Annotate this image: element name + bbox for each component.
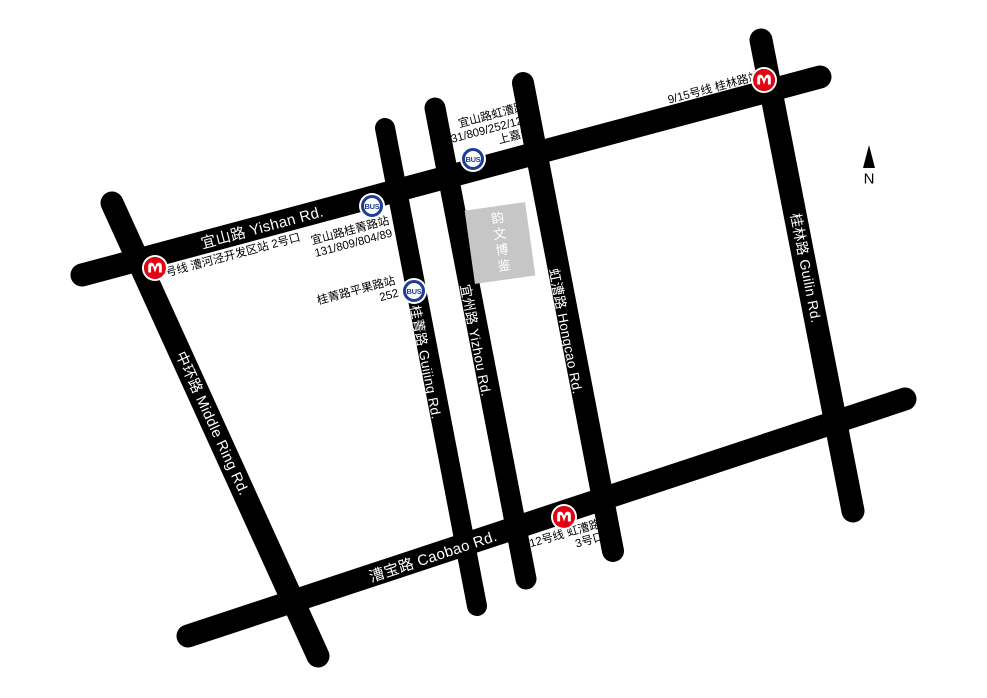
- map: 韵文博鉴 宜山路 Yishan Rd. 中环路 Middle Ring Rd. …: [0, 0, 987, 698]
- bus-stop-guijing-pingguo: BUS: [403, 280, 425, 302]
- road-network: [0, 0, 987, 698]
- metro-station-guilin-road: [753, 69, 775, 91]
- north-arrow-icon: [861, 145, 877, 169]
- bus-stop-yishan-guijing: BUS: [361, 195, 383, 217]
- bus-icon: BUS: [361, 195, 383, 217]
- bus-stop-yishan-hongcao: BUS: [462, 148, 484, 170]
- building-block: 韵文博鉴: [465, 202, 536, 284]
- building-name: 韵文博鉴: [488, 210, 512, 275]
- bus-icon: BUS: [403, 280, 425, 302]
- road-caobao: [188, 399, 905, 636]
- metro-icon: [553, 506, 575, 528]
- metro-station-caohejing: [144, 257, 166, 279]
- bus-icon: BUS: [462, 148, 484, 170]
- metro-icon: [753, 69, 775, 91]
- metro-icon: [144, 257, 166, 279]
- north-label: N: [864, 171, 875, 188]
- metro-station-hongcao-road: [553, 506, 575, 528]
